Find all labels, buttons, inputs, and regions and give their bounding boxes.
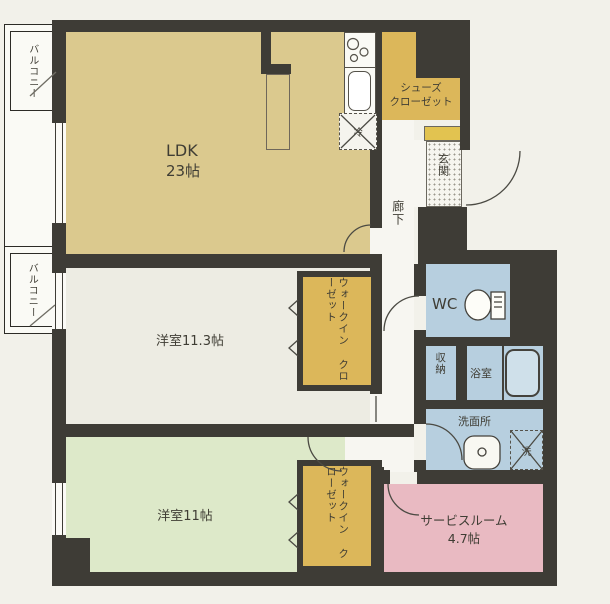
service-room-label: サービスルーム 4.7帖 bbox=[395, 512, 533, 547]
wic2-folding-door-icon bbox=[289, 494, 298, 548]
stove-burner-icon bbox=[360, 48, 368, 56]
shoe-closet-line2: クローゼット bbox=[378, 95, 464, 109]
ldk-name: LDK bbox=[166, 141, 200, 160]
entrance-door-arc bbox=[466, 151, 520, 205]
stove-burner-icon bbox=[351, 55, 358, 62]
washbasin-icon bbox=[464, 436, 500, 469]
shoe-closet-label: シューズ クローゼット bbox=[378, 81, 464, 109]
washer-cross bbox=[511, 431, 542, 469]
toilet-bowl-icon bbox=[465, 290, 491, 320]
washroom-door-arc bbox=[426, 424, 462, 460]
bathroom-label: 浴室 bbox=[470, 365, 492, 381]
ldk-door-arc bbox=[344, 225, 371, 252]
bedroom1-label: 洋室11.3帖 bbox=[120, 330, 260, 349]
service-room-area: 4.7帖 bbox=[395, 530, 533, 548]
washroom-label: 洗面所 bbox=[458, 413, 491, 429]
stove-burner-icon bbox=[348, 39, 359, 50]
balcony-drain-lines bbox=[30, 72, 56, 326]
wc-door-arc bbox=[384, 296, 419, 331]
hallway-label: 廊下 bbox=[390, 200, 404, 226]
wc-label: WC bbox=[432, 295, 457, 313]
ldk-area: 23帖 bbox=[166, 160, 200, 181]
service-door-arc bbox=[388, 484, 419, 515]
wic1-folding-door-icon bbox=[289, 300, 298, 356]
toilet-tank-icon bbox=[491, 292, 505, 319]
bedroom2-label: 洋室11帖 bbox=[115, 505, 255, 524]
entrance-label: 玄関 bbox=[436, 153, 449, 177]
service-room-name: サービスルーム bbox=[395, 512, 533, 530]
shoe-closet-line1: シューズ bbox=[378, 81, 464, 95]
ldk-label: LDK 23帖 bbox=[166, 141, 200, 181]
floor-plan: バルコニー バルコニー ウ bbox=[0, 0, 610, 604]
refrigerator-cross bbox=[341, 115, 375, 148]
storage-label: 収納 bbox=[434, 352, 446, 375]
bedroom2-door-arc bbox=[308, 437, 342, 471]
